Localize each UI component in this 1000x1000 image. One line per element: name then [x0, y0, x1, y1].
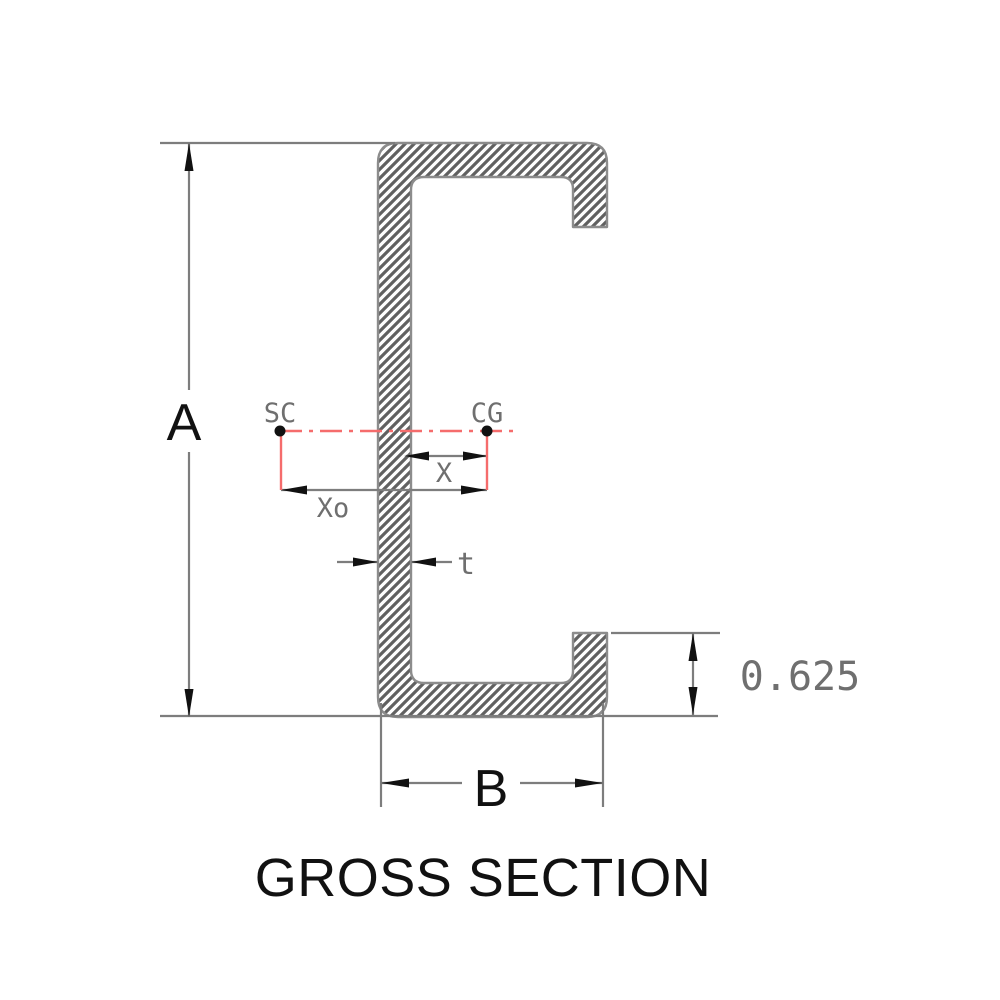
arrow-lip-down	[689, 687, 698, 715]
dim-label-depth: A	[167, 394, 202, 452]
dim-label-cg-offset: X	[436, 458, 452, 489]
arrow-B-right	[575, 779, 603, 788]
drawing-canvas: A B GROSS SECTION SC CG X Xo t 0.625	[0, 0, 1000, 1000]
dim-label-lip-length: 0.625	[740, 654, 860, 700]
arrow-B-left	[381, 779, 409, 788]
gross-section-drawing: A B GROSS SECTION SC CG X Xo t 0.625	[0, 0, 1000, 1000]
arrow-t-left	[353, 558, 378, 567]
arrow-t-right	[411, 558, 436, 567]
arrow-A-down	[185, 689, 194, 717]
dim-label-shear-center-offset: Xo	[317, 493, 350, 524]
arrow-Xo-left	[281, 486, 307, 495]
drawing-title: GROSS SECTION	[255, 848, 712, 908]
label-shear-center: SC	[264, 398, 297, 429]
arrow-X-right	[463, 452, 488, 461]
label-center-of-gravity: CG	[471, 398, 504, 429]
arrow-A-up	[185, 143, 194, 171]
arrow-Xo-right	[461, 486, 487, 495]
dim-label-thickness: t	[457, 547, 475, 582]
gray-labels: SC CG X Xo t 0.625	[264, 398, 860, 700]
arrow-lip-up	[689, 633, 698, 661]
dim-label-flange-width: B	[474, 760, 509, 818]
